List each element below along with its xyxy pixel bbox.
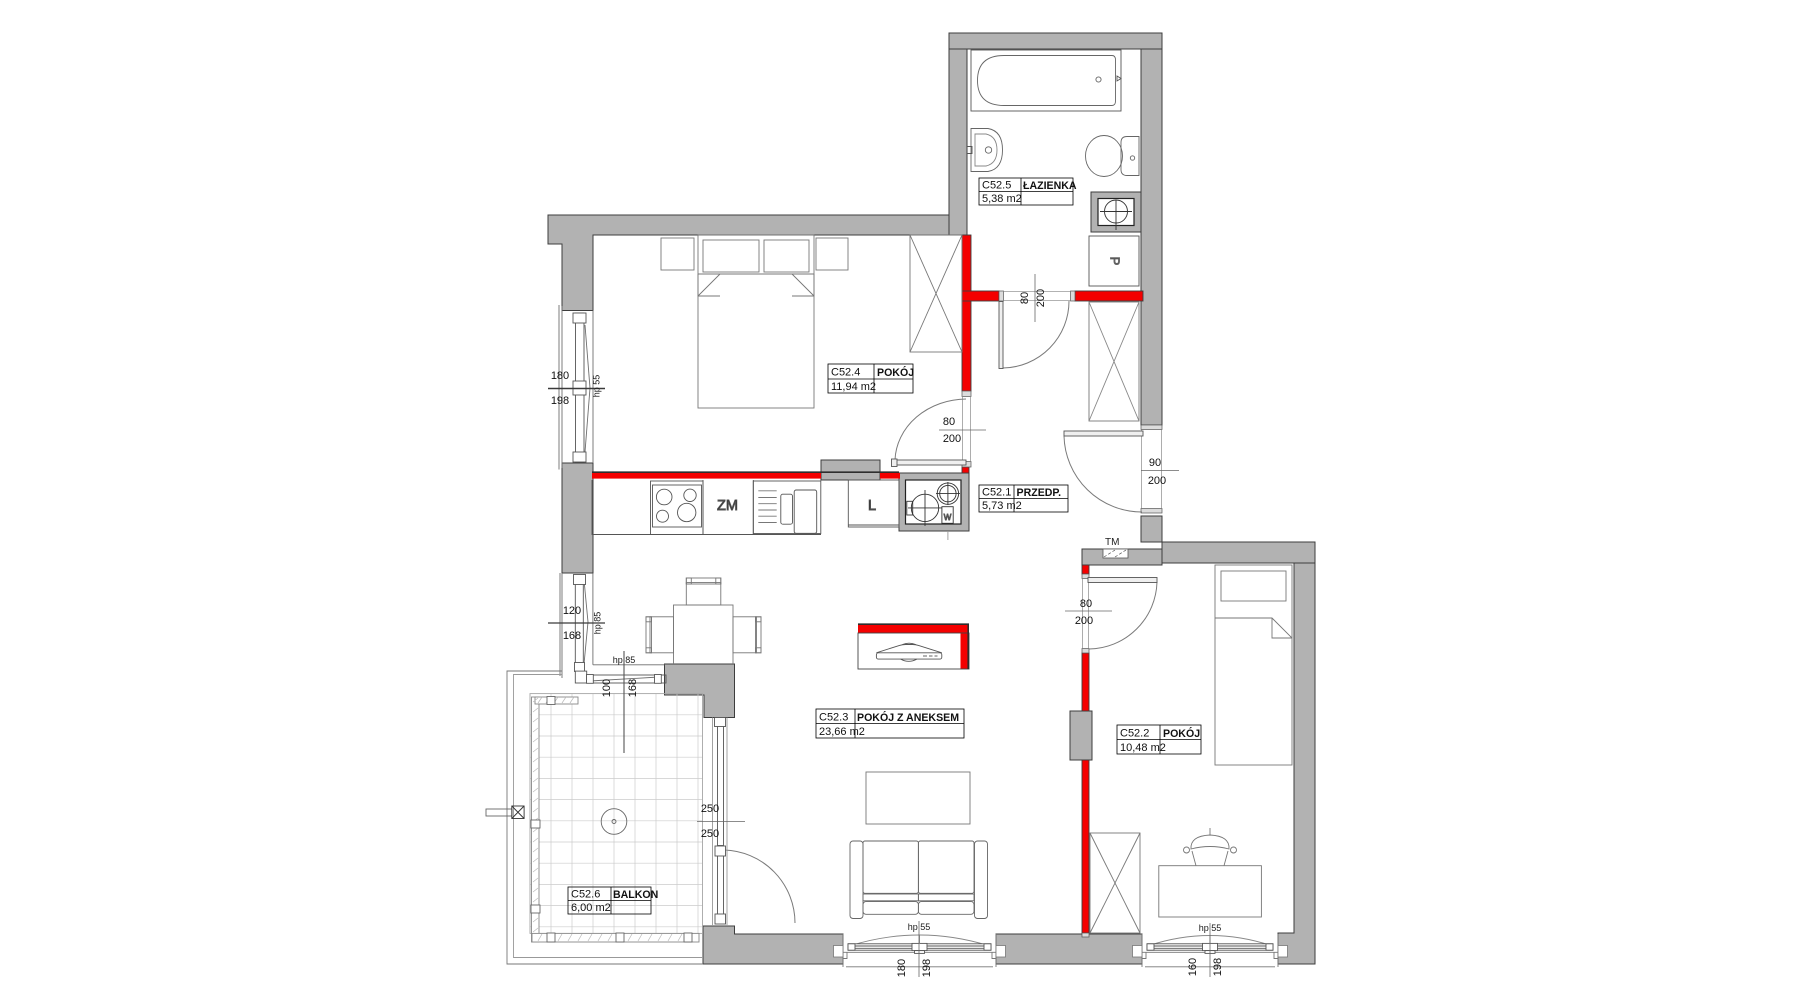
svg-text:23,66 m2: 23,66 m2 — [819, 726, 865, 738]
svg-text:200: 200 — [943, 433, 961, 445]
svg-text:180: 180 — [551, 370, 569, 382]
svg-text:POKÓJ Z ANEKSEM: POKÓJ Z ANEKSEM — [857, 711, 959, 724]
svg-text:hp 85: hp 85 — [613, 655, 636, 665]
svg-text:11,94 m2: 11,94 m2 — [831, 381, 876, 393]
svg-text:200: 200 — [1148, 475, 1166, 487]
svg-text:198: 198 — [1212, 958, 1224, 976]
svg-text:POKÓJ: POKÓJ — [877, 366, 914, 379]
svg-text:C52.1: C52.1 — [982, 487, 1011, 499]
svg-text:80: 80 — [1019, 292, 1031, 304]
svg-text:168: 168 — [563, 630, 581, 642]
svg-text:C52.2: C52.2 — [1120, 728, 1149, 740]
svg-text:P: P — [1108, 257, 1123, 266]
svg-text:hp 55: hp 55 — [1199, 923, 1222, 933]
svg-text:5,73 m2: 5,73 m2 — [982, 500, 1022, 512]
svg-text:160: 160 — [1187, 958, 1199, 976]
svg-text:200: 200 — [1035, 289, 1047, 307]
svg-text:250: 250 — [701, 803, 719, 815]
svg-text:hp 85: hp 85 — [593, 612, 603, 635]
svg-text:hp 55: hp 55 — [908, 922, 931, 932]
svg-text:BALKON: BALKON — [613, 889, 658, 901]
svg-text:POKÓJ: POKÓJ — [1163, 727, 1200, 740]
svg-text:250: 250 — [701, 828, 719, 840]
svg-text:L: L — [868, 498, 876, 514]
svg-text:10,48 m2: 10,48 m2 — [1120, 742, 1166, 754]
svg-text:C52.4: C52.4 — [831, 367, 860, 379]
svg-text:W: W — [944, 513, 952, 522]
svg-text:198: 198 — [921, 959, 933, 977]
svg-text:100: 100 — [601, 679, 613, 697]
svg-text:ZM: ZM — [717, 498, 738, 514]
svg-text:hp 55: hp 55 — [592, 375, 602, 398]
svg-text:200: 200 — [1075, 615, 1093, 627]
svg-text:TM: TM — [1105, 537, 1119, 548]
svg-text:120: 120 — [563, 605, 581, 617]
svg-text:90: 90 — [1149, 457, 1161, 469]
svg-text:80: 80 — [943, 416, 955, 428]
svg-text:5,38 m2: 5,38 m2 — [982, 193, 1022, 205]
svg-text:C52.3: C52.3 — [819, 712, 848, 724]
svg-text:PRZEDP.: PRZEDP. — [1017, 487, 1062, 499]
svg-text:ŁAZIENKA: ŁAZIENKA — [1023, 180, 1077, 192]
svg-text:198: 198 — [551, 395, 569, 407]
svg-text:80: 80 — [1080, 598, 1092, 610]
svg-text:C52.5: C52.5 — [982, 180, 1011, 192]
svg-text:6,00 m2: 6,00 m2 — [571, 902, 611, 914]
svg-text:168: 168 — [627, 679, 639, 697]
svg-text:C52.6: C52.6 — [571, 889, 600, 901]
svg-text:180: 180 — [896, 959, 908, 977]
